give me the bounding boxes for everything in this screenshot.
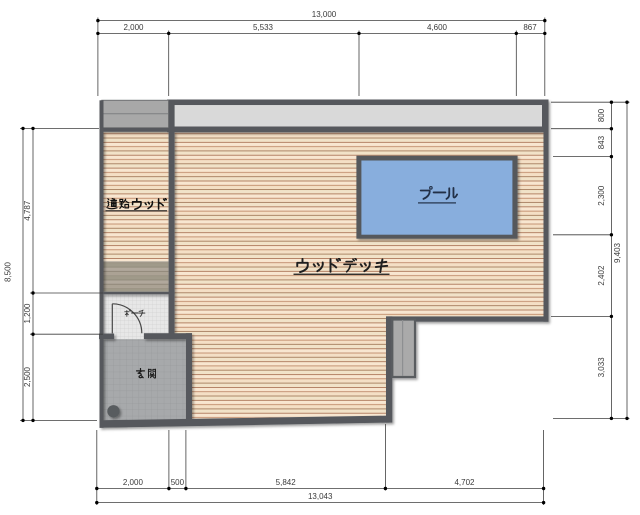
svg-text:867: 867 [523,23,537,32]
svg-text:500: 500 [171,478,185,487]
svg-text:2,402: 2,402 [597,265,606,286]
svg-text:13,043: 13,043 [308,492,333,501]
svg-text:4,702: 4,702 [454,478,475,487]
svg-text:13,000: 13,000 [312,10,337,19]
svg-text:2,000: 2,000 [123,478,144,487]
svg-text:8,500: 8,500 [4,261,13,282]
svg-text:2,000: 2,000 [123,23,144,32]
svg-text:4,600: 4,600 [427,23,448,32]
svg-text:800: 800 [597,108,606,122]
svg-text:5,842: 5,842 [276,478,297,487]
svg-text:5,533: 5,533 [253,23,274,32]
svg-text:2,300: 2,300 [597,185,606,206]
svg-text:9,403: 9,403 [613,242,622,263]
svg-text:1,200: 1,200 [23,303,32,324]
svg-text:2,500: 2,500 [23,366,32,387]
svg-text:843: 843 [597,135,606,149]
svg-text:3,033: 3,033 [597,357,606,378]
svg-text:4,787: 4,787 [23,200,32,221]
